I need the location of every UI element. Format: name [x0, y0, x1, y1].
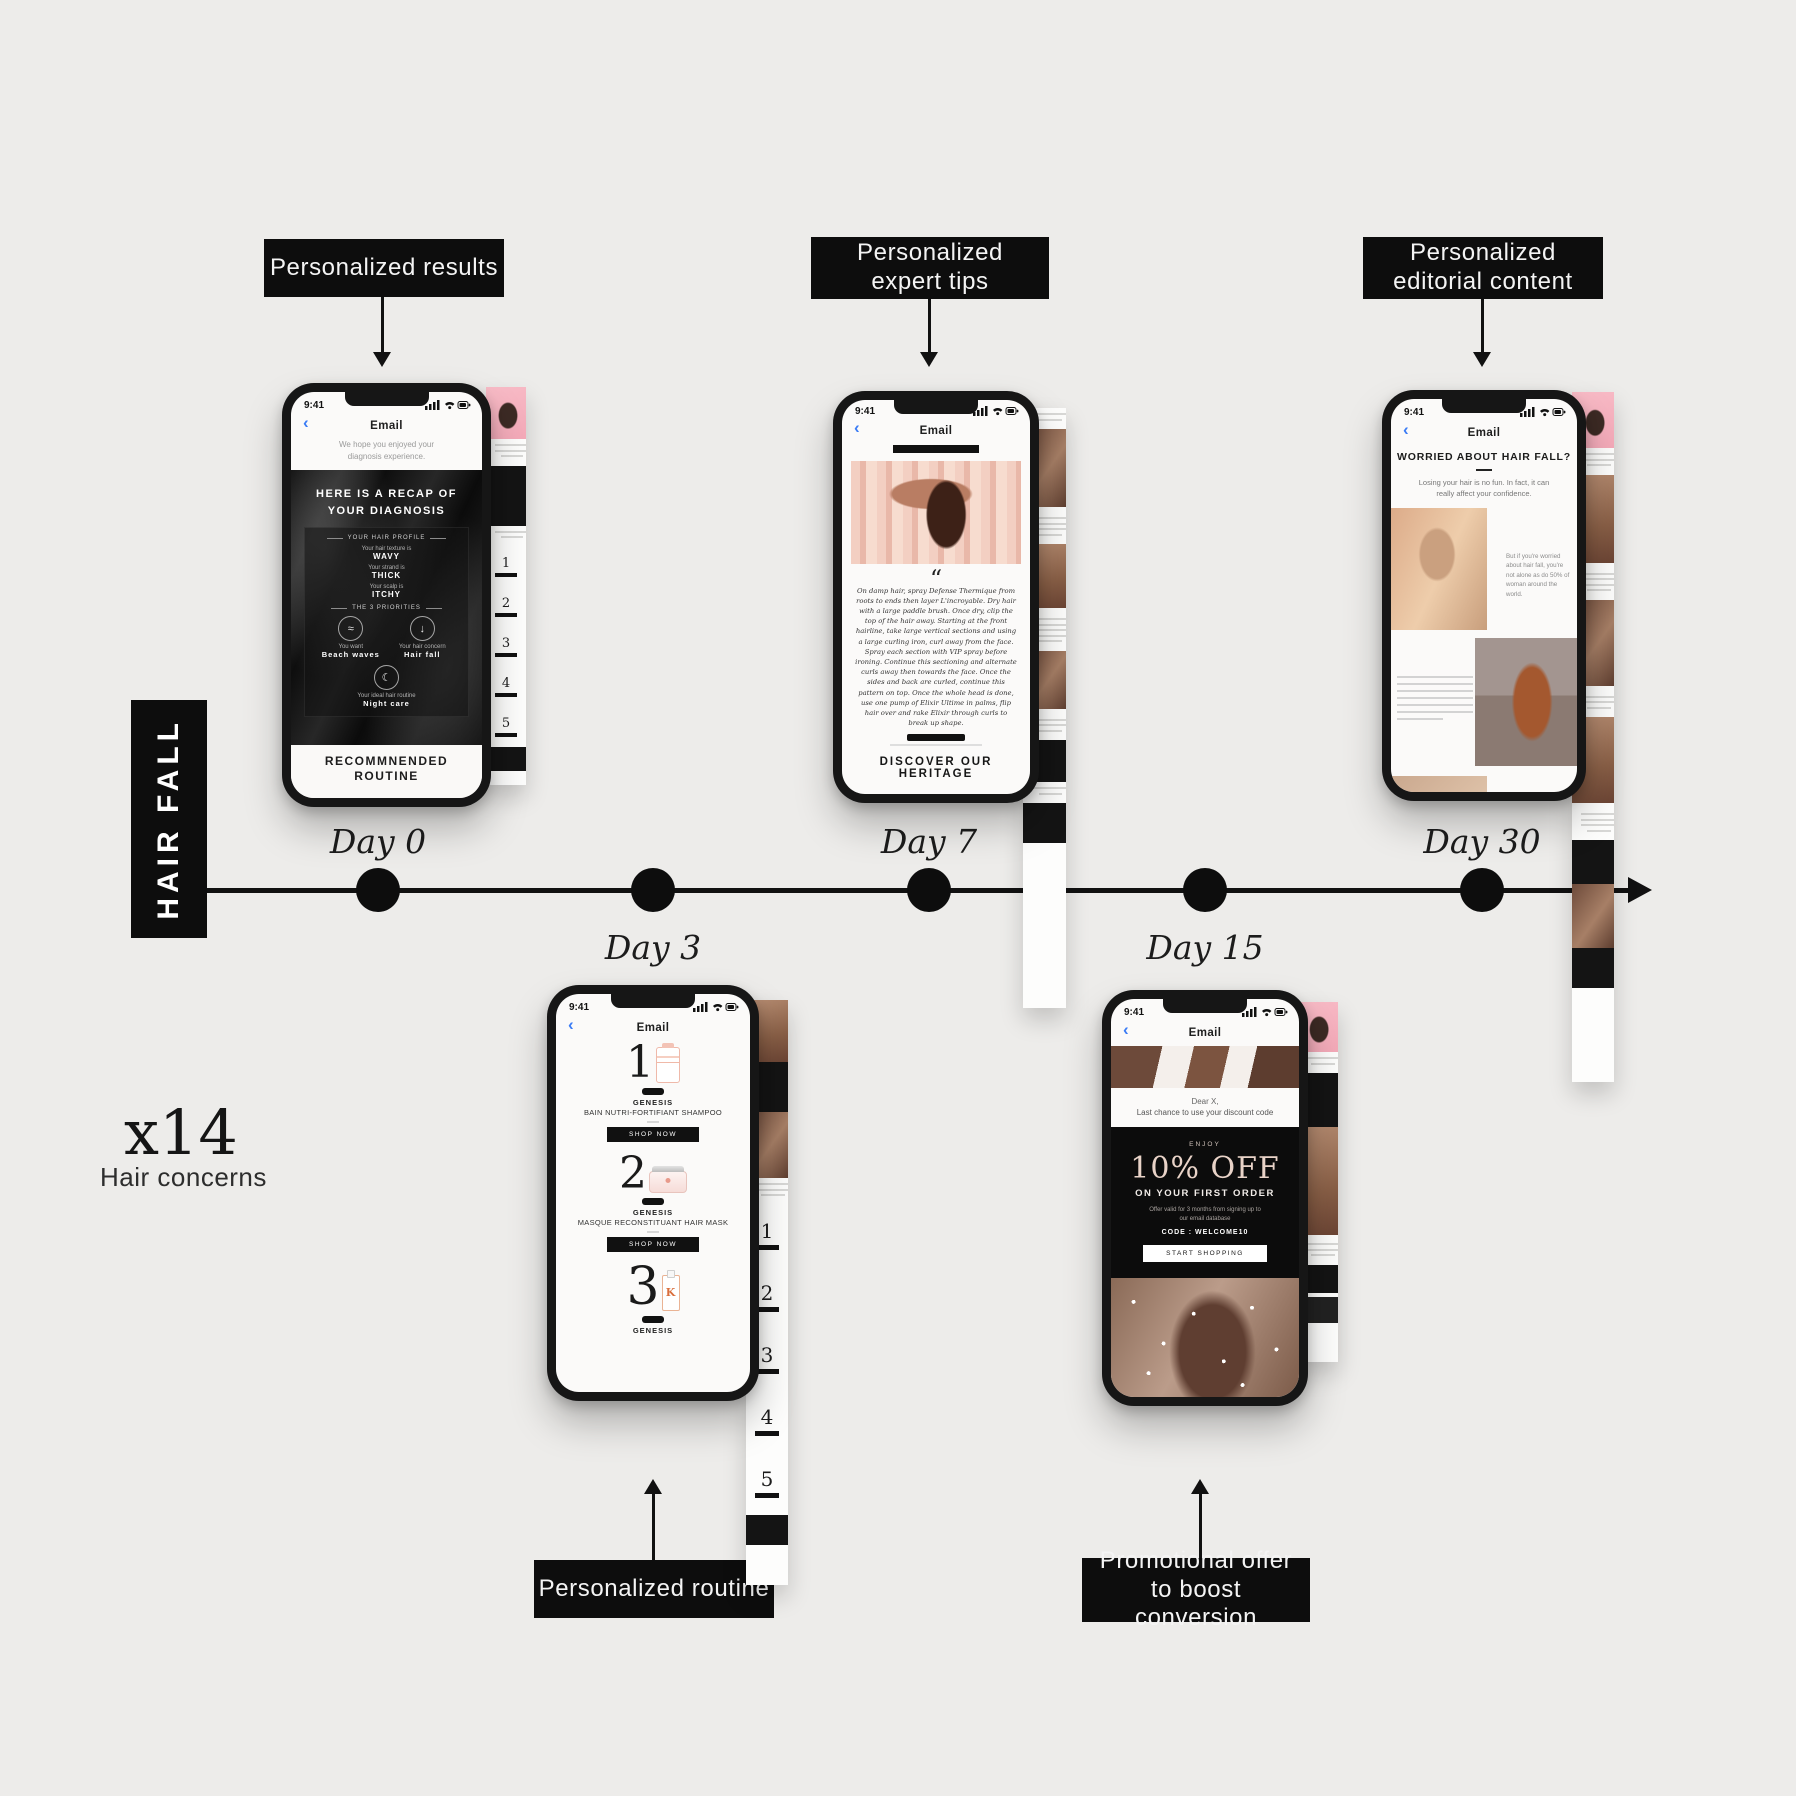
phone-day0: 9:41 ‹ Email We hope you enjoyed your di… — [282, 383, 491, 807]
email-nav: ‹ Email — [556, 1015, 750, 1041]
phone-day15: 9:41 ‹ Email Dear X, Last chance to use … — [1102, 990, 1308, 1406]
category-label: HAIR FALL — [152, 718, 186, 920]
timeline-dot-day30 — [1460, 868, 1504, 912]
step-number: 1 — [626, 1043, 654, 1083]
multiplier: x14 — [124, 1096, 238, 1169]
email-title: Email — [637, 1022, 670, 1034]
routine-step-2: 2 GENESIS MASQUE RECONSTITUANT HAIR MASK… — [556, 1154, 750, 1253]
profile-value: THICK — [309, 571, 464, 580]
strip-product: 2 — [486, 587, 526, 627]
profile-value: WAVY — [309, 552, 464, 561]
phone-day3-screen: 9:41 ‹ Email 1 GENESIS BAIN NUTRI-FORTIF… — [556, 994, 750, 1392]
blonde-woman-photo — [1391, 508, 1487, 630]
back-chevron-icon[interactable]: ‹ — [854, 419, 860, 436]
strip-footer — [1023, 803, 1066, 843]
signal-wifi-battery-icons — [1520, 407, 1566, 417]
timeline-label-day15: Day 15 — [1125, 928, 1285, 967]
product-name: BAIN NUTRI-FORTIFIANT SHAMPOO — [556, 1108, 750, 1117]
offer-headline: 10% OFF — [1119, 1151, 1291, 1186]
phone-day30: 9:41 ‹ Email WORRIED ABOUT HAIR FALL? Lo… — [1382, 390, 1586, 801]
priorities-row: ≈ You want Beach waves ↓ Your hair conce… — [315, 616, 458, 659]
intro-text: We hope you enjoyed your diagnosis exper… — [324, 439, 449, 463]
greeting-text: Dear X, — [1111, 1097, 1299, 1106]
strip-footer — [1572, 948, 1614, 988]
product-brand: GENESIS — [556, 1326, 750, 1335]
annotation-results: Personalized results — [264, 239, 504, 297]
strip-product: 4 — [486, 667, 526, 707]
email-nav: ‹ Email — [842, 418, 1030, 444]
expert-photo — [851, 461, 1021, 563]
timeline-dot-day7 — [907, 868, 951, 912]
phone-day7: 9:41 ‹ Email “ On damp hair, spray Defen… — [833, 391, 1039, 803]
strip-text — [486, 439, 526, 466]
product-brand: GENESIS — [556, 1208, 750, 1217]
profile-header: YOUR HAIR PROFILE — [309, 535, 464, 541]
shampoo-bottle-icon — [656, 1047, 680, 1083]
start-shopping-button[interactable]: START SHOPPING — [1143, 1245, 1267, 1262]
timeline-arrowhead-icon — [1628, 877, 1652, 903]
email-title: Email — [920, 425, 953, 437]
annotation-editorial-label: Personalized editorial content — [1388, 239, 1578, 297]
hair-strand-icon: ↓ — [410, 616, 435, 641]
brunette-photo — [1391, 776, 1487, 793]
annotation-expert-tips-label: Personalized expert tips — [850, 239, 1010, 297]
back-chevron-icon[interactable]: ‹ — [1403, 421, 1409, 438]
last-chance-text: Last chance to use your discount code — [1111, 1108, 1299, 1117]
expert-name-pill — [907, 734, 965, 740]
diagnosis-panel: YOUR HAIR PROFILE Your hair texture is W… — [304, 527, 469, 717]
email-title: Email — [1468, 427, 1501, 439]
connector-routine — [652, 1492, 655, 1560]
strip-dark-block — [486, 466, 526, 526]
signal-wifi-battery-icons — [425, 400, 471, 410]
status-time: 9:41 — [569, 1002, 589, 1013]
product-price — [647, 1121, 659, 1123]
editorial-headline: WORRIED ABOUT HAIR FALL? — [1391, 451, 1577, 463]
timeline-dot-day0 — [356, 868, 400, 912]
category-bar: HAIR FALL — [131, 700, 207, 938]
timeline-label-day30: Day 30 — [1402, 822, 1562, 861]
strip-product: 1 — [486, 547, 526, 587]
priority-value: Hair fall — [390, 650, 454, 659]
profile-row: Your strand is THICK — [309, 565, 464, 580]
priority-hair-fall: ↓ Your hair concern Hair fall — [390, 616, 454, 659]
timeline-label-day3: Day 3 — [573, 928, 733, 967]
phone-day30-screen: 9:41 ‹ Email WORRIED ABOUT HAIR FALL? Lo… — [1391, 399, 1577, 792]
step-number: 3 — [626, 1264, 659, 1311]
timeline-dot-day15 — [1183, 868, 1227, 912]
step-number: 2 — [619, 1154, 647, 1194]
signal-wifi-battery-icons — [693, 1002, 739, 1012]
strip-product: 4 — [746, 1391, 788, 1453]
arrow-down-icon — [920, 352, 938, 367]
arrow-down-icon — [1473, 352, 1491, 367]
hair-mask-jar-icon — [649, 1171, 687, 1193]
strip-product: 5 — [746, 1453, 788, 1515]
email-subject-pill — [893, 445, 979, 454]
routine-step-3: 3 K GENESIS — [556, 1264, 750, 1335]
multiplier-caption: Hair concerns — [100, 1162, 267, 1193]
serum-product-image: 3 K — [556, 1264, 750, 1311]
notch — [894, 400, 978, 414]
timeline-label-day0: Day 0 — [298, 822, 458, 861]
signal-wifi-battery-icons — [973, 406, 1019, 416]
timeline-dot-day3 — [631, 868, 675, 912]
annotation-routine-label: Personalized routine — [539, 1575, 770, 1604]
strip-product: 3 — [486, 627, 526, 667]
recap-title: HERE IS A RECAP OF YOUR DIAGNOSIS — [312, 486, 462, 519]
recommended-routine-label: RECOMMNENDED ROUTINE — [322, 754, 452, 785]
status-time: 9:41 — [304, 400, 324, 411]
annotation-results-label: Personalized results — [270, 254, 498, 283]
status-time: 9:41 — [1404, 407, 1424, 418]
editorial-collage: But if you're worried about hair fall, y… — [1391, 508, 1577, 793]
priorities-row: ☾ Your ideal hair routine Night care — [315, 665, 458, 708]
strip-product: 5 — [486, 707, 526, 747]
routine-step-1: 1 GENESIS BAIN NUTRI-FORTIFIANT SHAMPOO … — [556, 1043, 750, 1142]
product-name: MASQUE RECONSTITUANT HAIR MASK — [556, 1218, 750, 1227]
editorial-subline: Losing your hair is no fun. In fact, it … — [1409, 477, 1559, 500]
wave-icon: ≈ — [338, 616, 363, 641]
strip-footer — [486, 747, 526, 771]
strip-text — [1572, 803, 1614, 840]
expert-tip-text: On damp hair, spray Defense Thermique fr… — [842, 584, 1030, 729]
product-price — [647, 1231, 659, 1233]
connector-promo — [1199, 1492, 1202, 1558]
step-pill — [642, 1198, 664, 1205]
back-chevron-icon[interactable]: ‹ — [568, 1016, 574, 1033]
notch — [345, 392, 429, 406]
priority-beach-waves: ≈ You want Beach waves — [319, 616, 383, 659]
notch — [1442, 399, 1526, 413]
offer-eyebrow: ENJOY — [1119, 1141, 1291, 1148]
diagnosis-recap-section: HERE IS A RECAP OF YOUR DIAGNOSIS YOUR H… — [291, 470, 482, 745]
step-pill — [642, 1088, 664, 1095]
annotation-promo: Promotional offer to boost conversion — [1082, 1558, 1310, 1622]
priority-night-care: ☾ Your ideal hair routine Night care — [355, 665, 419, 708]
phone-day7-screen: 9:41 ‹ Email “ On damp hair, spray Defen… — [842, 400, 1030, 794]
connector-results — [381, 297, 384, 355]
status-time: 9:41 — [1124, 1007, 1144, 1018]
annotation-promo-label: Promotional offer to boost conversion — [1091, 1547, 1301, 1633]
email-preview-strip-day0: 1 2 3 4 5 — [486, 387, 526, 785]
phone-day3: 9:41 ‹ Email 1 GENESIS BAIN NUTRI-FORTIF… — [547, 985, 759, 1401]
editorial-paragraph-lines — [1397, 676, 1473, 725]
strip-hero-image — [486, 387, 526, 439]
arrow-down-icon — [373, 352, 391, 367]
quote-mark: “ — [842, 572, 1030, 584]
recommended-routine-footer[interactable]: RECOMMNENDED ROUTINE — [291, 745, 482, 798]
moon-icon: ☾ — [374, 665, 399, 690]
status-time: 9:41 — [855, 406, 875, 417]
priorities-header: THE 3 PRIORITIES — [309, 605, 464, 611]
connector-tips — [928, 299, 931, 355]
strip-image — [1572, 884, 1614, 948]
email-title: Email — [370, 420, 403, 432]
priority-value: Night care — [355, 699, 419, 708]
hair-fall-fact-text: But if you're worried about hair fall, y… — [1506, 552, 1572, 600]
phone-day0-screen: 9:41 ‹ Email We hope you enjoyed your di… — [291, 392, 482, 798]
strip-footer — [746, 1515, 788, 1545]
timeline-label-day7: Day 7 — [849, 822, 1009, 861]
profile-row: Your hair texture is WAVY — [309, 546, 464, 561]
headline-divider — [1476, 469, 1492, 471]
shop-now-button[interactable]: SHOP NOW — [607, 1127, 699, 1142]
signal-wifi-battery-icons — [1242, 1007, 1288, 1017]
sparkle-portrait-photo — [1111, 1278, 1299, 1397]
priority-value: Beach waves — [319, 650, 383, 659]
shop-now-button[interactable]: SHOP NOW — [607, 1237, 699, 1252]
serum-bottle-icon: K — [662, 1275, 680, 1311]
email-nav: ‹ Email — [1391, 420, 1577, 446]
email-title: Email — [1189, 1027, 1222, 1039]
product-brand: GENESIS — [556, 1098, 750, 1107]
connector-editorial — [1481, 299, 1484, 355]
journey-diagram: Personalized results Personalized expert… — [0, 0, 1796, 1796]
offer-subheadline: ON YOUR FIRST ORDER — [1119, 1188, 1291, 1199]
mask-product-image: 2 — [556, 1154, 750, 1194]
promo-code: CODE : WELCOME10 — [1119, 1229, 1291, 1236]
annotation-expert-tips: Personalized expert tips — [811, 237, 1049, 299]
hair-ribbon-banner — [1111, 1046, 1299, 1088]
profile-value: ITCHY — [309, 590, 464, 599]
back-chevron-icon[interactable]: ‹ — [303, 414, 309, 431]
offer-terms: Offer valid for 3 months from signing up… — [1145, 1206, 1265, 1224]
shampoo-product-image: 1 — [556, 1043, 750, 1083]
notch — [1163, 999, 1247, 1013]
email-nav: ‹ Email — [1111, 1020, 1299, 1046]
strip-dark-block — [1572, 840, 1614, 884]
profile-row: Your scalp is ITCHY — [309, 584, 464, 599]
discover-heritage-link[interactable]: DISCOVER OUR HERITAGE — [842, 746, 1030, 794]
annotation-routine: Personalized routine — [534, 1560, 774, 1618]
step-pill — [642, 1316, 664, 1323]
email-nav: ‹ Email — [291, 413, 482, 439]
strip-text — [486, 526, 526, 547]
offer-block: ENJOY 10% OFF ON YOUR FIRST ORDER Offer … — [1111, 1127, 1299, 1278]
notch — [611, 994, 695, 1008]
paris-redhead-photo — [1475, 638, 1577, 766]
annotation-editorial: Personalized editorial content — [1363, 237, 1603, 299]
arrow-up-icon — [644, 1479, 662, 1494]
phone-day15-screen: 9:41 ‹ Email Dear X, Last chance to use … — [1111, 999, 1299, 1397]
arrow-up-icon — [1191, 1479, 1209, 1494]
back-chevron-icon[interactable]: ‹ — [1123, 1021, 1129, 1038]
